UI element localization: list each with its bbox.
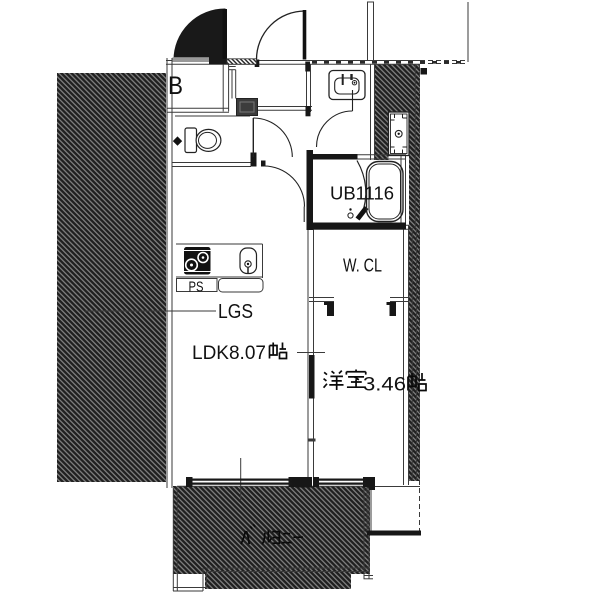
svg-text:PS: PS (189, 280, 204, 296)
svg-text:3.46: 3.46 (363, 375, 406, 396)
svg-text:UB1116: UB1116 (330, 183, 394, 204)
svg-text:B: B (168, 72, 183, 100)
svg-text:LGS: LGS (218, 301, 253, 323)
svg-text:LDK8.07: LDK8.07 (192, 343, 266, 364)
svg-text:W. CL: W. CL (343, 255, 382, 276)
